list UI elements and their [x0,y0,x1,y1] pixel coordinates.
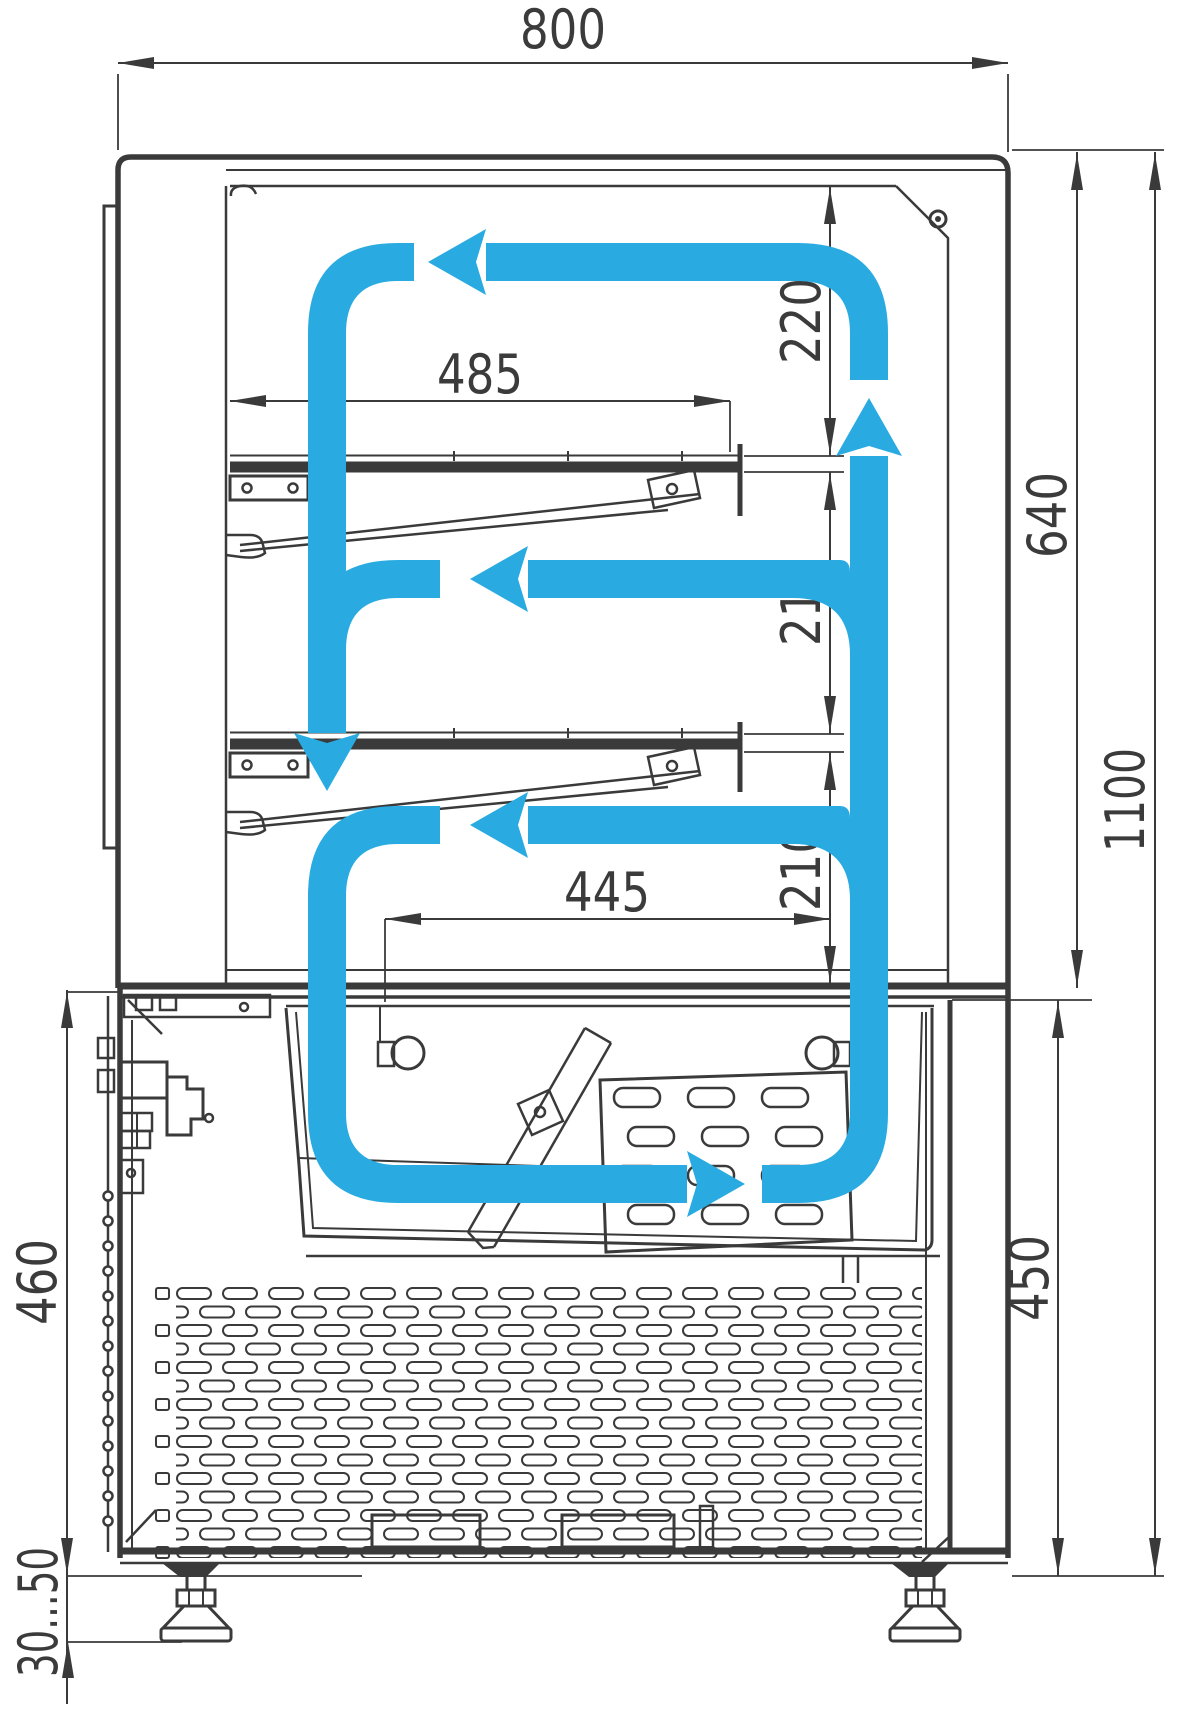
shelf-arm-clamp [648,747,700,785]
arm-wall-hook [226,812,265,835]
left-side-panel [104,206,117,848]
flow-arrow-left-mid2 [470,792,528,858]
drawing-canvas: 800 485 220 210 210 640 445 1100 460 450… [0,0,1177,1711]
dim-450-label: 450 [998,1235,1061,1321]
dim-foot-range-label: 30...50 [7,1547,70,1677]
drain-fitting-right [806,1006,852,1069]
bar-mount-tab [518,1090,563,1135]
dim-1100-label: 1100 [1094,748,1157,852]
flow-arrow-left-mid1 [470,546,528,612]
corner-screw-center [935,216,941,222]
dim-800-label: 800 [520,0,606,61]
chamber-corner-cut [896,186,948,985]
ventilation-grille [176,1286,922,1558]
technical-diagram: 800 485 220 210 210 640 445 1100 460 450… [0,0,1177,1711]
dim-220-label: 220 [770,278,833,364]
corner-brace [126,1510,156,1542]
compressor-unit [98,1038,213,1193]
arm-wall-hook [226,535,265,558]
dim-460-label: 460 [6,1239,69,1325]
dim-445-label: 445 [564,861,650,924]
diagonal-heater-bar [468,1028,611,1248]
dim-640-label: 640 [1016,472,1079,558]
deflector-plate [600,1072,852,1252]
drain-fitting-left [378,1006,424,1069]
flow-arrow-up [836,398,902,456]
upper-shelf [226,444,740,558]
dim-485-label: 485 [437,343,523,406]
air-flow-layer [294,229,902,1217]
shelf-arm-clamp [648,470,700,508]
flow-arrow-left-top [428,229,486,295]
grille-lead-squares [156,1288,169,1558]
